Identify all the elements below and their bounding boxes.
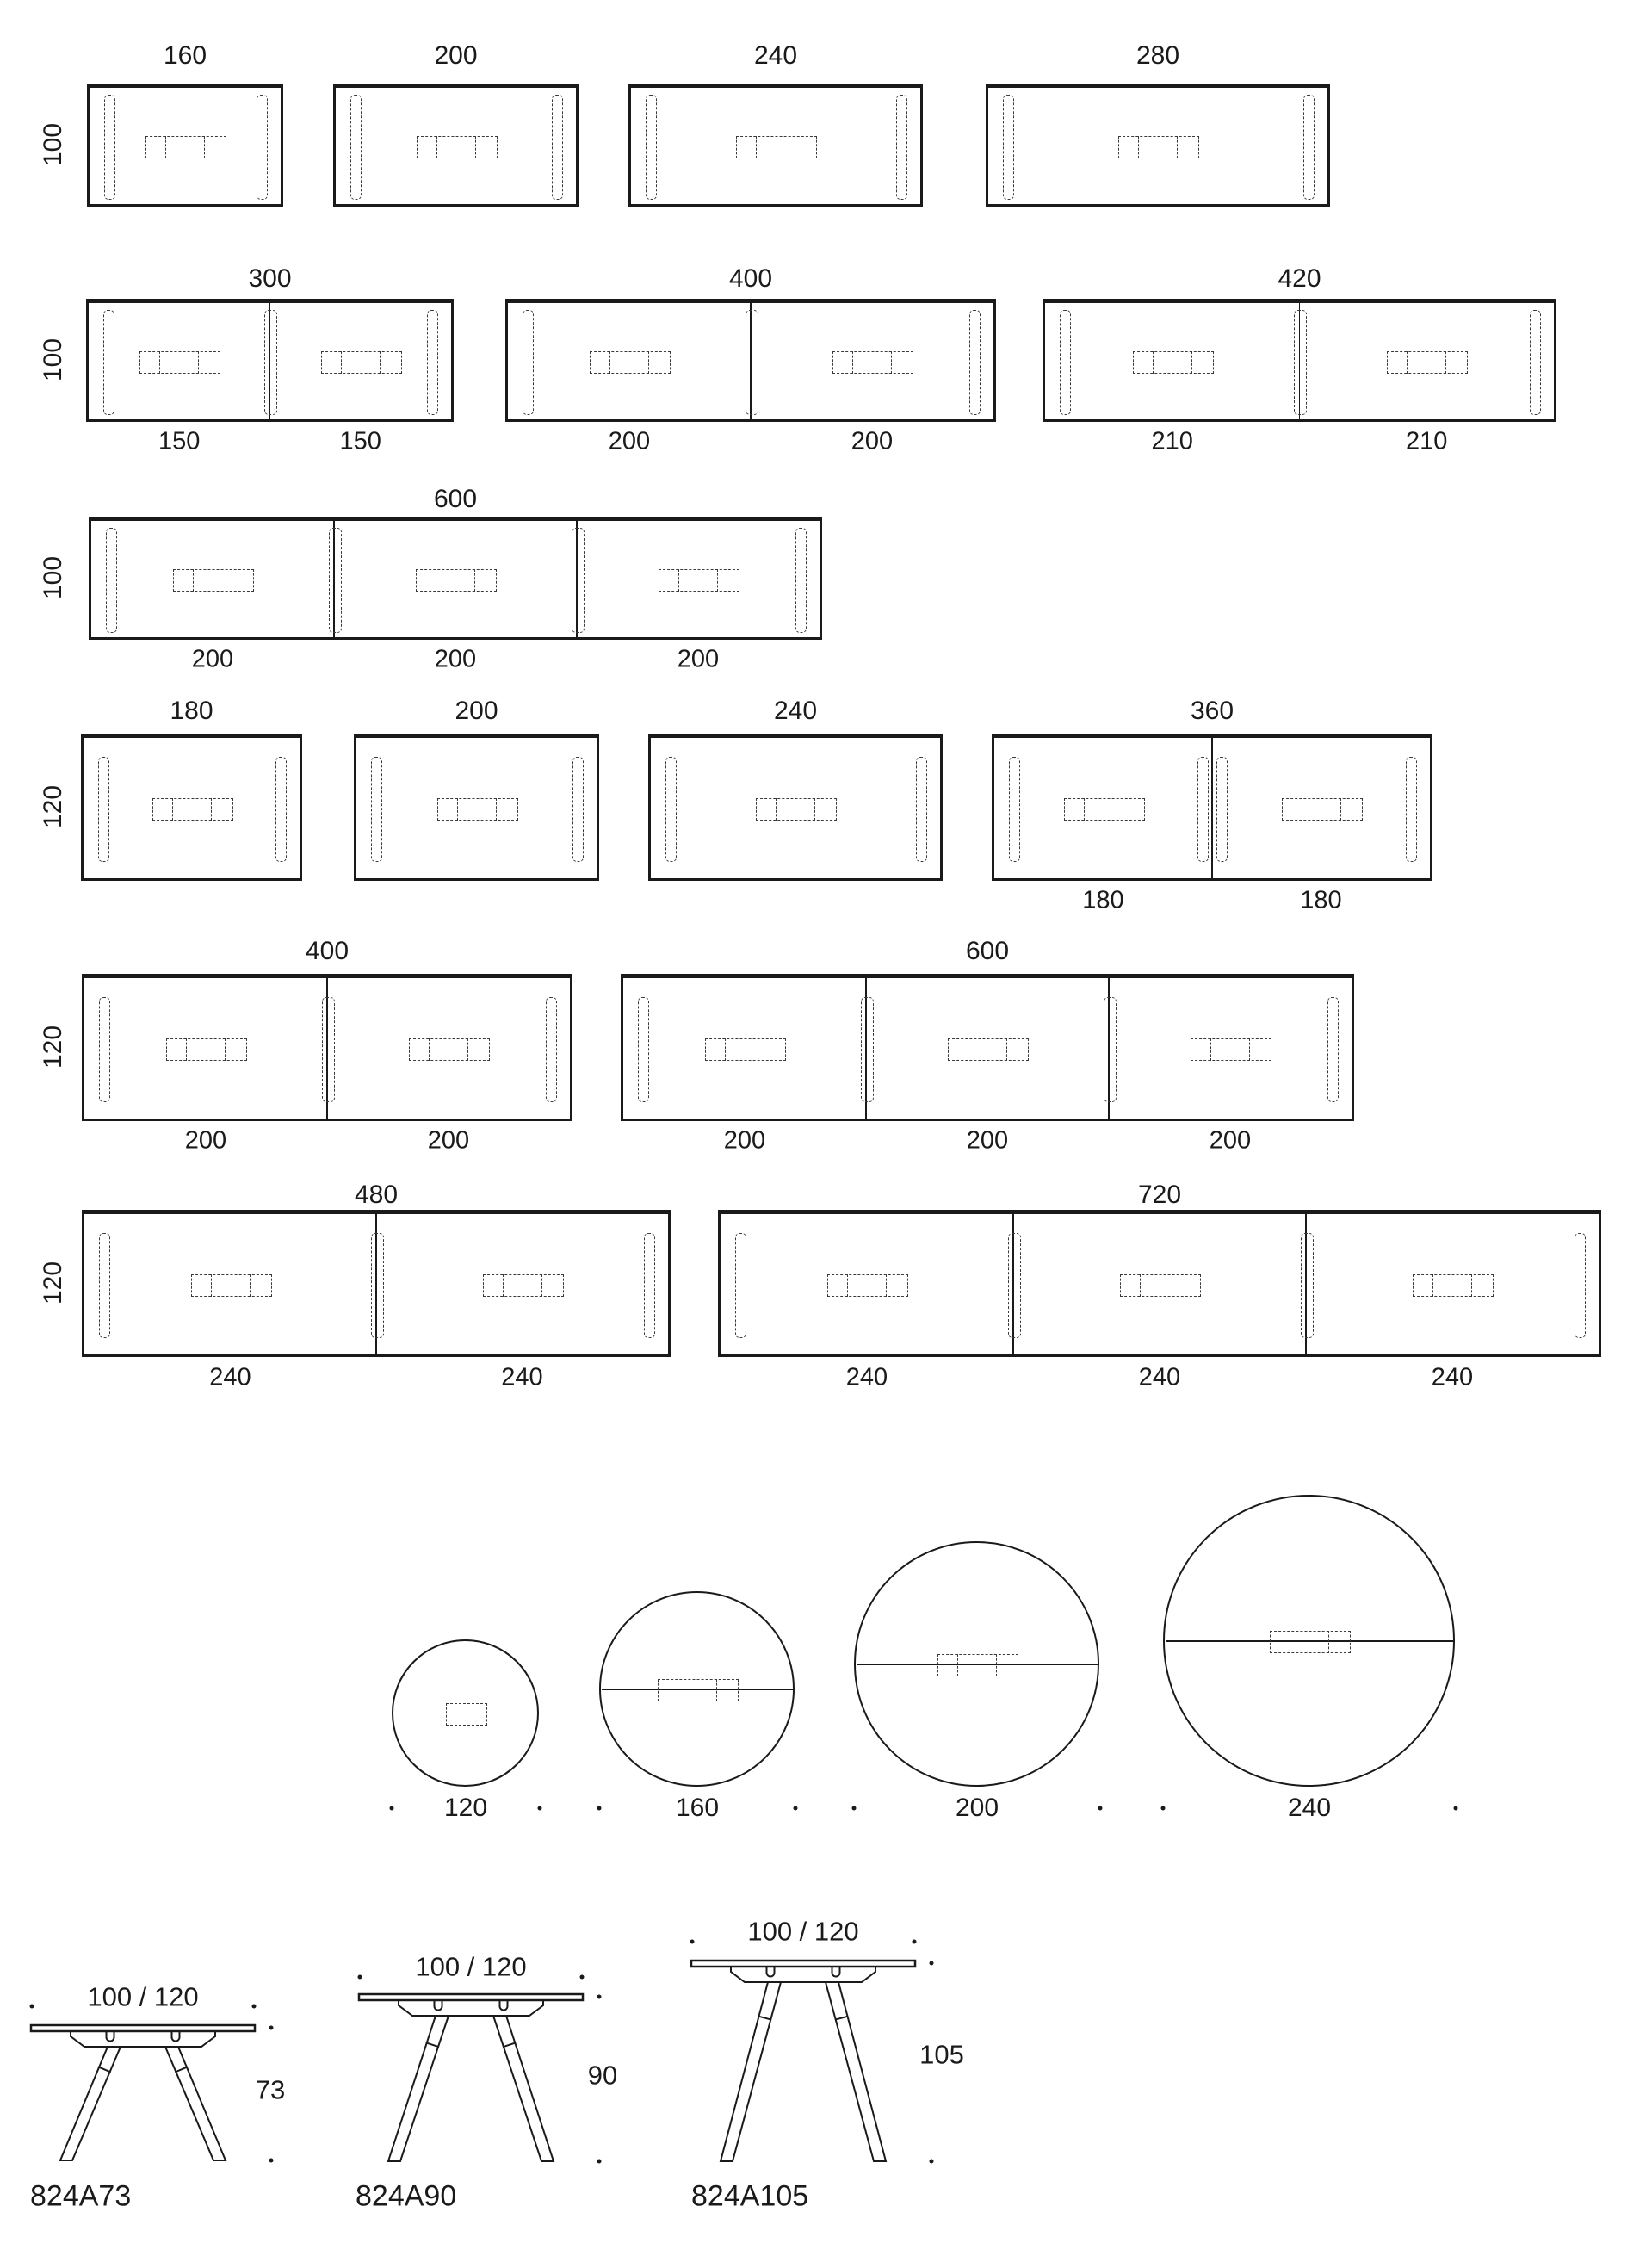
cable-tray-plan [590, 351, 671, 374]
table-leg-plan [896, 95, 907, 200]
module-width-label: 240 [846, 1366, 888, 1391]
module-width-label: 240 [1432, 1366, 1473, 1391]
cable-tray-divider [648, 351, 649, 374]
dimension-dot [538, 1806, 542, 1811]
cable-tray-divider [159, 351, 160, 374]
table-leg-side [388, 2016, 449, 2161]
table-plan-480x120 [82, 1210, 671, 1357]
cable-tray-divider [1140, 1274, 1141, 1297]
cable-tray-divider [186, 1038, 187, 1061]
table-leg-plan [969, 310, 981, 415]
width-label: 360 [1191, 698, 1234, 724]
table-plan-280x100 [986, 84, 1330, 207]
cable-tray-divider [1084, 798, 1085, 821]
depth-label: 120 [40, 1261, 66, 1304]
apron-bracket [71, 2031, 215, 2047]
cable-tray-divider [1153, 351, 1154, 374]
cable-tray-plan [832, 351, 913, 374]
cable-tray-divider [193, 569, 194, 592]
module-divider [1211, 738, 1213, 878]
dimension-dot [597, 2160, 602, 2164]
cable-tray-divider [225, 1038, 226, 1061]
table-leg-plan [665, 757, 677, 862]
cable-tray-plan [1282, 798, 1363, 821]
width-label: 300 [248, 266, 291, 292]
cable-tray-divider [886, 1274, 887, 1297]
dimension-dot [597, 1806, 602, 1811]
table-leg-plan [371, 757, 382, 862]
table-leg-plan [644, 1233, 655, 1338]
cable-tray-divider [776, 798, 777, 821]
dimension-dot [1098, 1806, 1103, 1811]
cable-tray-divider [795, 136, 795, 158]
cable-tray-divider [1191, 351, 1192, 374]
table-plan-240x120 [648, 734, 943, 881]
cable-tray-divider [436, 136, 437, 158]
cable-tray-divider [847, 1274, 848, 1297]
cable-tray-divider [1177, 136, 1178, 158]
table-leg-plan [322, 997, 335, 1102]
module-width-label: 150 [340, 430, 381, 455]
cable-tray-divider [764, 1038, 764, 1061]
width-label: 280 [1136, 43, 1179, 69]
cable-tray-divider [380, 351, 381, 374]
width-label: 200 [455, 698, 498, 724]
table-leg-plan [1575, 1233, 1586, 1338]
table-leg-plan [646, 95, 657, 200]
table-leg-side [826, 1982, 886, 2161]
width-label: 400 [729, 266, 772, 292]
module-width-label: 200 [435, 648, 476, 672]
table-plan-360x120 [992, 734, 1432, 881]
cable-tray-plan [827, 1274, 908, 1297]
table-leg-side [60, 2047, 121, 2160]
cable-tray-plan [1064, 798, 1145, 821]
cable-tray-divider [725, 1038, 726, 1061]
cable-tray-divider [1290, 1631, 1290, 1653]
depth-label: 100 [40, 556, 66, 599]
table-leg-plan [103, 310, 114, 415]
table-plan-160x100 [87, 84, 283, 207]
depth-label: 100 [40, 123, 66, 166]
top-size-label: 100 / 120 [415, 1954, 526, 1980]
cable-tray-divider [814, 798, 815, 821]
cable-tray-divider [503, 1274, 504, 1297]
table-leg-plan [264, 310, 277, 415]
table-leg-side [165, 2047, 226, 2160]
height-label: 105 [919, 2042, 964, 2068]
dimension-sheet: 1001602002402801003001501504002002004202… [0, 0, 1652, 2268]
cable-tray-plan [145, 136, 226, 158]
cable-tray-divider [1432, 1274, 1433, 1297]
cable-tray-divider [678, 1679, 678, 1701]
module-width-label: 180 [1082, 889, 1123, 914]
cable-tray-plan [416, 569, 497, 592]
height-label: 73 [256, 2077, 285, 2104]
cable-tray-divider [211, 1274, 212, 1297]
cable-tray-plan [1413, 1274, 1494, 1297]
table-leg-plan [1294, 310, 1307, 415]
cable-tray-divider [1179, 1274, 1179, 1297]
dimension-dot [269, 2026, 274, 2030]
table-leg-plan [257, 95, 268, 200]
module-width-label: 200 [185, 1129, 226, 1154]
table-plan-240x100 [628, 84, 923, 207]
table-leg-plan [1104, 997, 1117, 1102]
table-leg-plan [1197, 757, 1209, 862]
table-leg-plan [1003, 95, 1014, 200]
width-label: 180 [170, 698, 213, 724]
module-width-label: 240 [501, 1366, 542, 1391]
dimension-dot [252, 2005, 257, 2009]
table-plan-200x100 [333, 84, 579, 207]
module-width-label: 200 [851, 430, 893, 455]
tabletop-side [691, 1961, 915, 1967]
cable-tray-plan [659, 569, 739, 592]
cable-tray-divider [436, 569, 436, 592]
cable-tray-divider [1123, 798, 1123, 821]
table-leg-plan [99, 1233, 110, 1338]
depth-label: 120 [40, 785, 66, 828]
cable-tray-divider [852, 351, 853, 374]
cable-tray-plan [321, 351, 402, 374]
table-elevation-73 [0, 2018, 289, 2166]
table-leg-plan [572, 757, 584, 862]
cable-tray-divider [211, 798, 212, 821]
cable-tray-plan [1191, 1038, 1271, 1061]
cable-tray-plan [417, 136, 498, 158]
table-plan-600x100 [89, 517, 822, 640]
table-leg-plan [98, 757, 109, 862]
module-width-label: 150 [158, 430, 200, 455]
table-plan-600x120 [621, 974, 1354, 1121]
dimension-dot [1161, 1806, 1166, 1811]
table-leg-plan [1303, 95, 1315, 200]
dimension-dot [30, 2005, 34, 2009]
table-leg-plan [1009, 757, 1020, 862]
width-label: 400 [306, 939, 349, 964]
cable-tray-divider [467, 1038, 468, 1061]
cable-tray-divider [341, 351, 342, 374]
cable-tray-divider [1407, 351, 1408, 374]
dimension-dot [913, 1940, 917, 1944]
module-width-label: 200 [678, 648, 719, 672]
table-leg-plan [329, 528, 342, 633]
width-label: 240 [774, 698, 817, 724]
cable-tray-divider [475, 136, 476, 158]
width-label: 240 [754, 43, 797, 69]
cable-tray-plan [1387, 351, 1468, 374]
cable-tray-plan [152, 798, 233, 821]
cable-tray-divider [198, 351, 199, 374]
table-leg-plan [916, 757, 927, 862]
product-code: 824A73 [30, 2180, 131, 2214]
cable-tray-divider [474, 569, 475, 592]
width-label: 600 [434, 486, 477, 512]
table-leg-plan [638, 997, 649, 1102]
cable-tray-divider [1249, 1038, 1250, 1061]
cable-tray-divider [250, 1274, 251, 1297]
dimension-dot [690, 1940, 695, 1944]
width-label: 200 [434, 43, 477, 69]
module-width-label: 180 [1300, 889, 1341, 914]
width-label: 720 [1138, 1182, 1181, 1208]
table-plan-400x120 [82, 974, 572, 1121]
table-plan-400x100 [505, 299, 996, 422]
table-leg-plan [350, 95, 362, 200]
module-width-label: 210 [1152, 430, 1193, 455]
cable-tray-plan [1270, 1631, 1351, 1653]
dimension-dot [580, 1975, 585, 1980]
table-leg-plan [371, 1233, 384, 1338]
dimension-dot [794, 1806, 798, 1811]
width-label: 600 [966, 939, 1009, 964]
cable-tray-divider [996, 1654, 997, 1676]
table-leg-side [721, 1982, 781, 2161]
height-label: 90 [588, 2062, 617, 2089]
table-leg-plan [572, 528, 585, 633]
top-size-label: 100 / 120 [87, 1984, 198, 2011]
cable-tray-plan [191, 1274, 272, 1297]
table-leg-plan [735, 1233, 746, 1338]
table-leg-plan [99, 997, 110, 1102]
cable-tray-divider [716, 1679, 717, 1701]
cable-tray-divider [1302, 798, 1302, 821]
apron-bracket [399, 2000, 543, 2016]
cable-tray-plan [756, 798, 837, 821]
table-leg-plan [523, 310, 534, 415]
table-elevation-105 [657, 1954, 950, 2166]
table-leg-plan [546, 997, 557, 1102]
cable-tray-plan [173, 569, 254, 592]
cable-tray-divider [678, 569, 679, 592]
table-leg-plan [1327, 997, 1339, 1102]
dimension-dot [269, 2159, 274, 2163]
cable-tray-divider [717, 569, 718, 592]
diameter-label: 120 [444, 1795, 487, 1821]
product-code: 824A90 [356, 2180, 456, 2214]
cable-tray-divider [891, 351, 892, 374]
table-plan-720x120 [718, 1210, 1601, 1357]
cable-tray-plan [446, 1703, 487, 1726]
cable-tray-divider [429, 1038, 430, 1061]
table-leg-plan [1216, 757, 1228, 862]
module-width-label: 200 [1210, 1129, 1251, 1154]
cable-tray-divider [1328, 1631, 1329, 1653]
dimension-dot [852, 1806, 857, 1811]
module-width-label: 240 [209, 1366, 251, 1391]
table-plan-300x100 [86, 299, 454, 422]
table-leg-plan [552, 95, 563, 200]
diameter-label: 160 [676, 1795, 719, 1821]
cable-tray-divider [609, 351, 610, 374]
cable-tray-plan [1120, 1274, 1201, 1297]
cable-tray-plan [658, 1679, 739, 1701]
table-leg-plan [1406, 757, 1417, 862]
cable-tray-divider [457, 798, 458, 821]
cable-tray-divider [1138, 136, 1139, 158]
cable-tray-plan [1118, 136, 1199, 158]
cable-tray-plan [409, 1038, 490, 1061]
module-width-label: 210 [1406, 430, 1447, 455]
dimension-dot [597, 1995, 602, 1999]
tabletop-side [31, 2025, 255, 2031]
table-plan-420x100 [1043, 299, 1556, 422]
cable-tray-divider [172, 798, 173, 821]
product-code: 824A105 [691, 2180, 808, 2214]
cable-tray-divider [756, 136, 757, 158]
cable-tray-plan [705, 1038, 786, 1061]
cable-tray-divider [232, 569, 232, 592]
table-leg-plan [275, 757, 287, 862]
module-width-label: 200 [428, 1129, 469, 1154]
diameter-label: 240 [1288, 1795, 1331, 1821]
cable-tray-divider [1445, 351, 1446, 374]
dimension-dot [358, 1975, 362, 1980]
width-label: 480 [355, 1182, 398, 1208]
width-label: 160 [164, 43, 207, 69]
depth-label: 100 [40, 338, 66, 381]
width-label: 420 [1278, 266, 1321, 292]
dimension-dot [390, 1806, 394, 1811]
cable-tray-plan [736, 136, 817, 158]
table-leg-plan [104, 95, 115, 200]
table-leg-side [493, 2016, 554, 2161]
module-width-label: 200 [192, 648, 233, 672]
cable-tray-divider [957, 1654, 958, 1676]
table-plan-200x120 [354, 734, 599, 881]
cable-tray-divider [1006, 1038, 1007, 1061]
cable-tray-plan [948, 1038, 1029, 1061]
cable-tray-plan [483, 1274, 564, 1297]
table-plan-180x120 [81, 734, 302, 881]
cable-tray-divider [968, 1038, 968, 1061]
table-leg-plan [427, 310, 438, 415]
cable-tray-divider [1210, 1038, 1211, 1061]
module-width-label: 200 [609, 430, 650, 455]
dimension-dot [930, 2160, 934, 2164]
cable-tray-divider [1340, 798, 1341, 821]
table-elevation-90 [325, 1987, 617, 2166]
dimension-dot [1454, 1806, 1458, 1811]
depth-label: 120 [40, 1026, 66, 1069]
module-width-label: 240 [1139, 1366, 1180, 1391]
cable-tray-divider [165, 136, 166, 158]
table-leg-plan [1060, 310, 1071, 415]
module-width-label: 200 [967, 1129, 1008, 1154]
cable-tray-plan [1133, 351, 1214, 374]
table-leg-plan [1530, 310, 1541, 415]
table-leg-plan [861, 997, 874, 1102]
cable-tray-divider [204, 136, 205, 158]
cable-tray-plan [937, 1654, 1018, 1676]
cable-tray-divider [496, 798, 497, 821]
top-size-label: 100 / 120 [747, 1918, 858, 1945]
table-leg-plan [746, 310, 758, 415]
cable-tray-divider [541, 1274, 542, 1297]
table-leg-plan [1301, 1233, 1314, 1338]
cable-tray-divider [1471, 1274, 1472, 1297]
tabletop-side [359, 1994, 583, 2000]
diameter-label: 200 [956, 1795, 999, 1821]
dimension-dot [930, 1961, 934, 1966]
table-leg-plan [106, 528, 117, 633]
module-width-label: 200 [724, 1129, 765, 1154]
cable-tray-plan [437, 798, 518, 821]
table-leg-plan [795, 528, 807, 633]
cable-tray-plan [166, 1038, 247, 1061]
apron-bracket [731, 1967, 875, 1982]
cable-tray-plan [139, 351, 220, 374]
table-leg-plan [1008, 1233, 1021, 1338]
